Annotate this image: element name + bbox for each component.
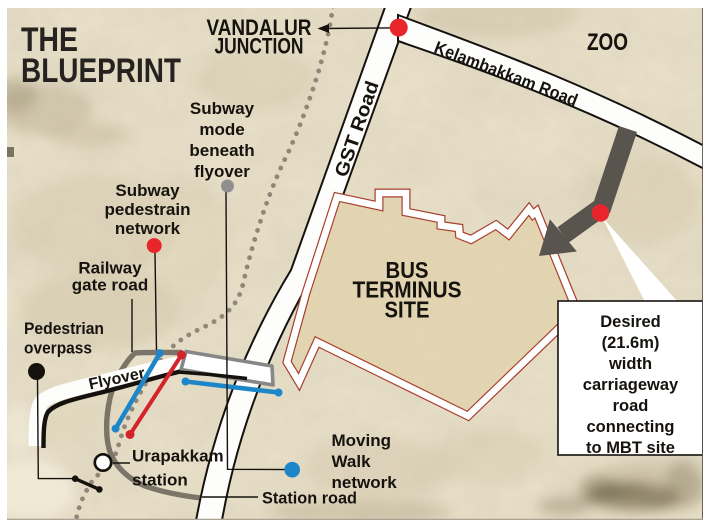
svg-text:Moving: Moving (332, 431, 392, 450)
svg-text:flyover: flyover (194, 162, 250, 181)
svg-text:(21.6m): (21.6m) (602, 334, 660, 352)
svg-text:station: station (132, 471, 188, 490)
svg-text:mode: mode (199, 120, 244, 139)
svg-text:pedestrain: pedestrain (105, 200, 191, 219)
svg-text:width: width (608, 355, 652, 373)
svg-text:Urapakkam: Urapakkam (132, 447, 224, 466)
svg-text:ZOO: ZOO (587, 29, 628, 56)
svg-text:to MBT site: to MBT site (586, 439, 675, 457)
svg-text:Walk: Walk (332, 452, 372, 471)
svg-text:network: network (115, 219, 181, 238)
svg-text:BLUEPRINT: BLUEPRINT (21, 52, 181, 90)
svg-text:Subway: Subway (115, 181, 180, 200)
svg-text:Desired: Desired (600, 313, 661, 331)
svg-text:beneath: beneath (189, 141, 254, 160)
svg-text:Station road: Station road (262, 489, 357, 508)
svg-text:SITE: SITE (385, 296, 430, 322)
svg-text:road: road (613, 397, 649, 415)
svg-text:overpass: overpass (24, 339, 92, 358)
svg-text:gate road: gate road (72, 276, 149, 295)
svg-text:connecting: connecting (586, 418, 674, 436)
svg-text:JUNCTION: JUNCTION (215, 34, 304, 59)
svg-text:carriageway: carriageway (583, 376, 679, 394)
svg-text:Pedestrian: Pedestrian (24, 319, 104, 338)
svg-text:Railway: Railway (78, 259, 142, 278)
svg-text:Subway: Subway (190, 99, 255, 118)
